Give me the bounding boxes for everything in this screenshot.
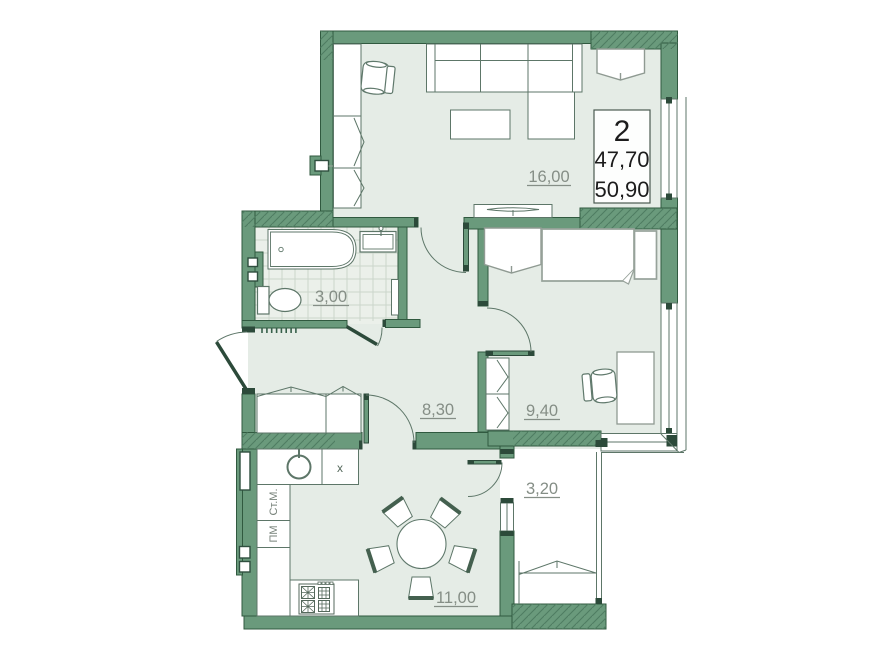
svg-text:50,90: 50,90 — [594, 177, 649, 202]
svg-text:47,70: 47,70 — [594, 147, 649, 172]
svg-text:11,00: 11,00 — [436, 589, 476, 607]
svg-text:3,00: 3,00 — [315, 288, 347, 306]
svg-text:x: x — [337, 461, 343, 475]
svg-text:3,20: 3,20 — [526, 480, 558, 498]
svg-text:9,40: 9,40 — [526, 402, 558, 420]
svg-text:8,30: 8,30 — [422, 401, 454, 419]
svg-text:Ст.М.: Ст.М. — [268, 488, 280, 515]
svg-text:16,00: 16,00 — [528, 168, 569, 186]
svg-text:2: 2 — [614, 115, 631, 148]
svg-text:ПМ: ПМ — [268, 525, 280, 542]
